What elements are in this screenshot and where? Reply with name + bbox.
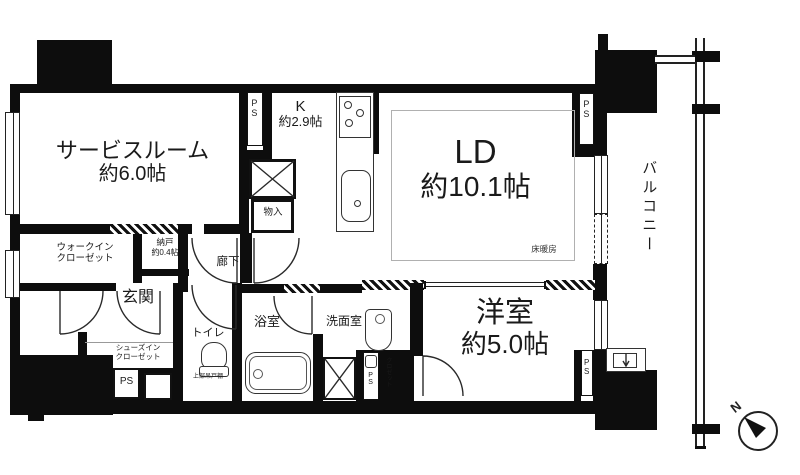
wall-segment: [239, 159, 249, 234]
balcony-divider: [655, 55, 695, 64]
wall-segment: [593, 264, 607, 300]
door-arc: [192, 285, 236, 329]
railing-cap: [695, 446, 706, 449]
floorplan: PS PS PS PS PS サービスルーム 約6.0帖 K 約2.9帖 LD …: [0, 0, 800, 475]
ps-label: PS: [582, 358, 591, 376]
kitchen-size: 約2.9帖: [258, 115, 343, 130]
wall-segment: [37, 40, 112, 88]
shaft-x-box: [249, 159, 296, 199]
toilet-shelf-note: 上部吊戸棚: [180, 374, 236, 381]
washing-machine-pan: [323, 357, 356, 400]
stove-burner: [356, 109, 364, 117]
window: [5, 112, 20, 215]
wall-segment: [10, 224, 110, 234]
wall-segment: [204, 224, 245, 234]
wall-segment: [238, 284, 284, 293]
floor-divider-line: [85, 342, 173, 343]
kitchen-name: K: [258, 98, 343, 115]
wall-segment: [313, 334, 323, 402]
window: [594, 155, 608, 214]
bathroom-label: 浴室: [242, 315, 292, 330]
wall-segment: [78, 332, 87, 358]
washroom-label: 洗面室: [318, 315, 370, 329]
wall-hatch: [110, 224, 178, 234]
hallway-label: 廊下: [204, 256, 252, 269]
balcony-faucet: [606, 348, 646, 372]
room-label-western: 洋室 約5.0帖: [420, 297, 590, 360]
western-room-name: 洋室: [420, 297, 590, 330]
service-room-name: サービスルーム: [25, 138, 240, 163]
entrance-label: 玄関: [108, 289, 168, 307]
kitchen-sink: [341, 170, 371, 222]
wall-segment: [320, 284, 362, 293]
wall-segment: [595, 370, 657, 430]
railing-tick: [692, 424, 720, 434]
ps-label: PS: [581, 99, 591, 119]
ld-size: 約10.1帖: [378, 171, 573, 203]
compass-north-icon: N: [722, 395, 786, 459]
wall-hatch: [546, 280, 595, 290]
sic-line2: クローゼット: [106, 353, 170, 362]
floor-heating-label: 床暖房: [518, 245, 570, 255]
stove-burner: [345, 119, 353, 127]
wall-segment: [239, 150, 272, 159]
toilet-label: トイレ: [184, 327, 232, 340]
railing-tick: [692, 51, 720, 62]
room-label-service: サービスルーム 約6.0帖: [25, 138, 240, 186]
wall-segment: [178, 224, 192, 234]
ld-name: LD: [378, 133, 573, 171]
north-label: N: [727, 398, 744, 416]
nando-name: 納戸: [141, 238, 189, 248]
nando-size: 約0.4帖: [141, 248, 189, 257]
stove-burner: [344, 101, 352, 109]
railing-tick: [692, 104, 720, 114]
wic-line2: クローゼット: [36, 254, 134, 265]
bathtub: [245, 352, 311, 394]
wall-hatch: [284, 284, 320, 293]
window: [5, 250, 20, 298]
balcony-label: バルコニー: [640, 160, 657, 255]
window-sliding: [594, 214, 608, 264]
sink-faucet: [354, 200, 361, 207]
sliding-door-track: [424, 282, 546, 287]
door-arc: [60, 291, 103, 334]
western-room-size: 約5.0帖: [420, 330, 590, 360]
track-end: [424, 281, 426, 289]
meter-box: [144, 373, 172, 400]
wic-label: ウォークイン クローゼット: [36, 243, 134, 265]
sic-label: シューズイン クローゼット: [106, 344, 170, 361]
wall-segment: [20, 283, 116, 291]
ps-label: PS: [113, 376, 140, 388]
service-room-size: 約6.0帖: [25, 163, 240, 186]
room-label-kitchen: K 約2.9帖: [258, 98, 343, 130]
wall-segment: [20, 355, 113, 415]
door-arc: [254, 238, 299, 283]
ps-label: PS: [366, 372, 374, 386]
monoire-label: 物入: [254, 208, 292, 219]
wall-segment: [10, 84, 597, 93]
balcony-railing: [695, 38, 705, 448]
wall-segment: [232, 283, 242, 402]
room-label-ld: LD 約10.1帖: [378, 133, 573, 203]
nando-label: 納戸 約0.4帖: [141, 238, 189, 257]
window: [594, 300, 608, 350]
door-arc: [423, 356, 463, 396]
wall-segment: [142, 269, 189, 276]
wall-segment: [239, 92, 247, 156]
closet-strip-label: クロゼット: [384, 357, 391, 387]
